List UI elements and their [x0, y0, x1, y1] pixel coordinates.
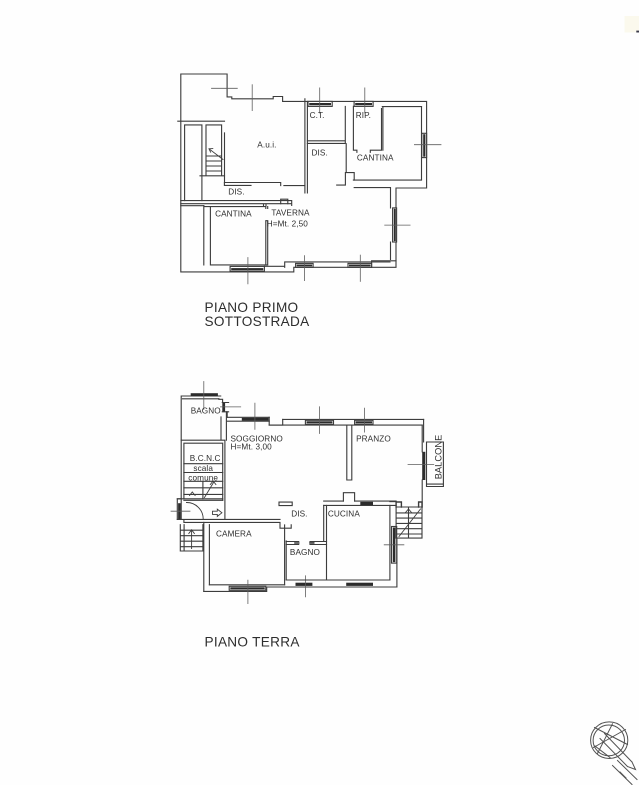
svg-text:H=Mt. 2,50: H=Mt. 2,50	[267, 219, 309, 228]
svg-text:BAGNO: BAGNO	[290, 548, 320, 557]
svg-text:CANTINA: CANTINA	[357, 153, 394, 162]
svg-text:PRANZO: PRANZO	[356, 435, 391, 444]
svg-text:H=Mt. 3,00: H=Mt. 3,00	[231, 442, 273, 451]
svg-text:CANTINA: CANTINA	[215, 210, 252, 219]
svg-text:BAGNO: BAGNO	[191, 407, 221, 416]
svg-text:C.T.: C.T.	[310, 111, 325, 120]
svg-text:RIP.: RIP.	[356, 111, 371, 120]
svg-text:scala: scala	[193, 464, 213, 473]
svg-text:CUCINA: CUCINA	[328, 510, 360, 519]
svg-text:PIANO PRIMO: PIANO PRIMO	[205, 300, 299, 315]
svg-text:DIS.: DIS.	[312, 149, 328, 158]
svg-text:DIS.: DIS.	[291, 510, 307, 519]
svg-text:TAVERNA: TAVERNA	[271, 209, 310, 218]
svg-text:A.u.i.: A.u.i.	[257, 141, 276, 150]
svg-text:CAMERA: CAMERA	[216, 530, 252, 539]
svg-text:DIS.: DIS.	[228, 188, 244, 197]
svg-text:B.C.N.C: B.C.N.C	[190, 454, 221, 463]
svg-text:comune: comune	[188, 474, 218, 483]
svg-text:PIANO TERRA: PIANO TERRA	[205, 634, 301, 649]
svg-text:BALCONE: BALCONE	[434, 435, 444, 480]
svg-text:SOTTOSTRADA: SOTTOSTRADA	[205, 314, 311, 329]
